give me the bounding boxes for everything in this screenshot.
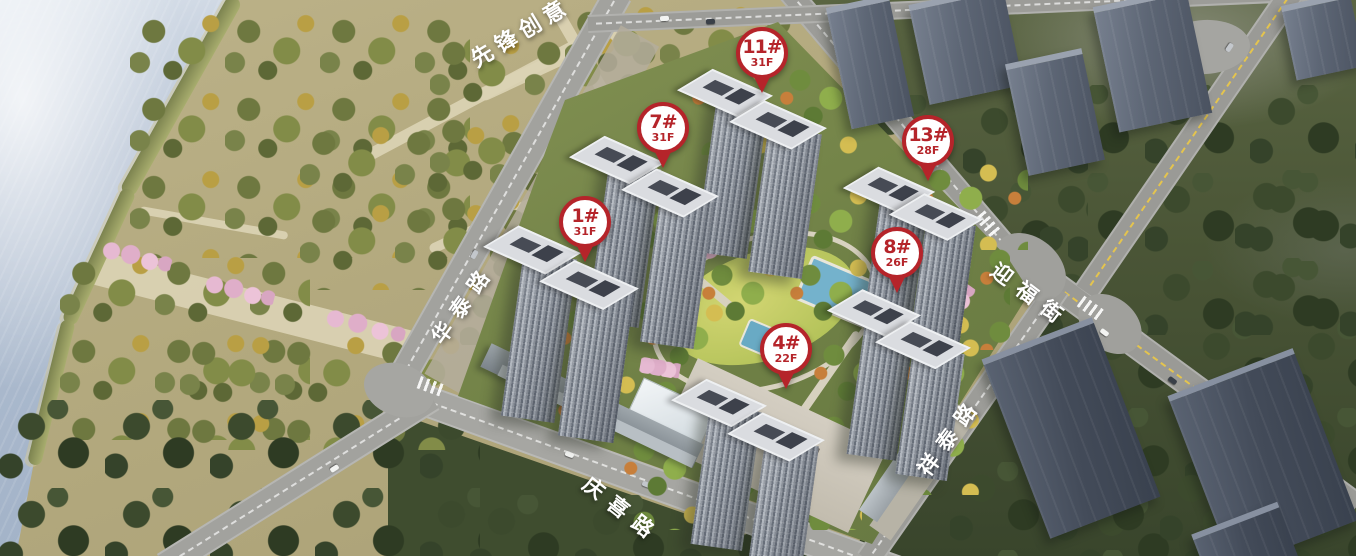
pin-circle: 4# 22F xyxy=(760,323,812,375)
pin-floor-count: 31F xyxy=(652,132,675,144)
tower xyxy=(758,130,812,276)
pin-circle: 13# 28F xyxy=(902,115,954,167)
pin-circle: 7# 31F xyxy=(637,102,689,154)
pin-building-number: 7# xyxy=(649,112,676,132)
building-pin-4[interactable]: 4# 22F xyxy=(758,323,814,389)
car xyxy=(706,19,715,24)
tower xyxy=(918,222,968,340)
building-pin-11[interactable]: 11# 31F xyxy=(734,27,790,93)
building-pin-13[interactable]: 13# 28F xyxy=(900,115,956,181)
pin-circle: 11# 31F xyxy=(736,27,788,79)
tower xyxy=(650,198,704,346)
pin-building-number: 8# xyxy=(883,237,910,257)
pin-floor-count: 26F xyxy=(886,257,909,269)
pin-circle: 1# 31F xyxy=(559,196,611,248)
park-path xyxy=(54,242,425,367)
pin-floor-count: 28F xyxy=(917,145,940,157)
pin-floor-count: 31F xyxy=(574,226,597,238)
pin-building-number: 11# xyxy=(742,37,781,57)
park-path xyxy=(139,206,288,240)
pin-building-number: 1# xyxy=(571,206,598,226)
site-aerial-map: 1# 31F 7# 31F 11# 31F 13# 28F 8# 26F xyxy=(0,0,1356,556)
building-pin-8[interactable]: 8# 26F xyxy=(869,227,925,293)
building-pin-7[interactable]: 7# 31F xyxy=(635,102,691,168)
pin-building-number: 13# xyxy=(908,125,947,145)
pin-floor-count: 22F xyxy=(775,353,798,365)
pin-floor-count: 31F xyxy=(751,57,774,69)
building-pin-1[interactable]: 1# 31F xyxy=(557,196,613,262)
tower xyxy=(756,442,810,556)
car xyxy=(660,16,669,21)
pin-building-number: 4# xyxy=(772,333,799,353)
tower xyxy=(568,290,624,440)
pin-circle: 8# 26F xyxy=(871,227,923,279)
